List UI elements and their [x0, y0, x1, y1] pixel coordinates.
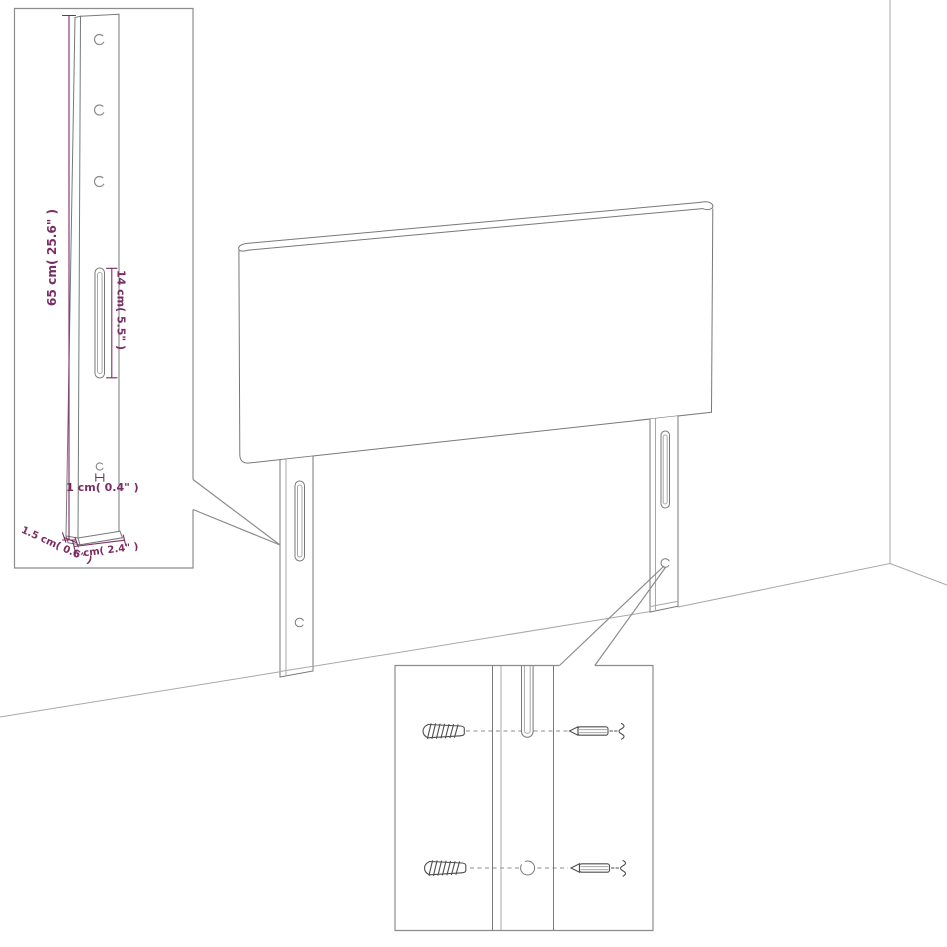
bracket-hole-top: [95, 35, 105, 45]
headboard-panel: [239, 202, 713, 464]
bracket-hole-lower: [95, 177, 105, 187]
right-leg-screw-hole: [661, 559, 670, 568]
dim-label-height: 65 cm( 25.6" ): [45, 209, 59, 306]
dim-label-slot: 14 cm( 5.5" ): [115, 270, 128, 350]
left-leg-slot: [295, 481, 305, 561]
callout-line-lower-left: [193, 510, 280, 546]
bracket-slot: [95, 268, 105, 378]
mounting-detail-inset: [395, 566, 666, 931]
right-leg-slot: [661, 431, 670, 508]
callout-line-right-bottom: [595, 567, 666, 666]
bracket-hole-middle: [95, 105, 105, 115]
enlarged-leg-hole: [521, 861, 535, 875]
callout-line-upper-left: [193, 480, 280, 546]
bracket-small-hole: [96, 463, 103, 470]
diagram-svg: 65 cm( 25.6" ) 14 cm( 5.5" ) 1 cm( 0.4" …: [0, 0, 947, 947]
headboard-left-leg: [280, 456, 313, 677]
headboard-dimension-diagram: 65 cm( 25.6" ) 14 cm( 5.5" ) 1 cm( 0.4" …: [0, 0, 947, 947]
dim-label-hole: 1 cm( 0.4" ): [66, 481, 138, 494]
left-leg-screw-hole: [295, 618, 304, 627]
enlarged-leg-slot: [522, 666, 534, 737]
callout-line-left-bottom: [560, 566, 665, 666]
